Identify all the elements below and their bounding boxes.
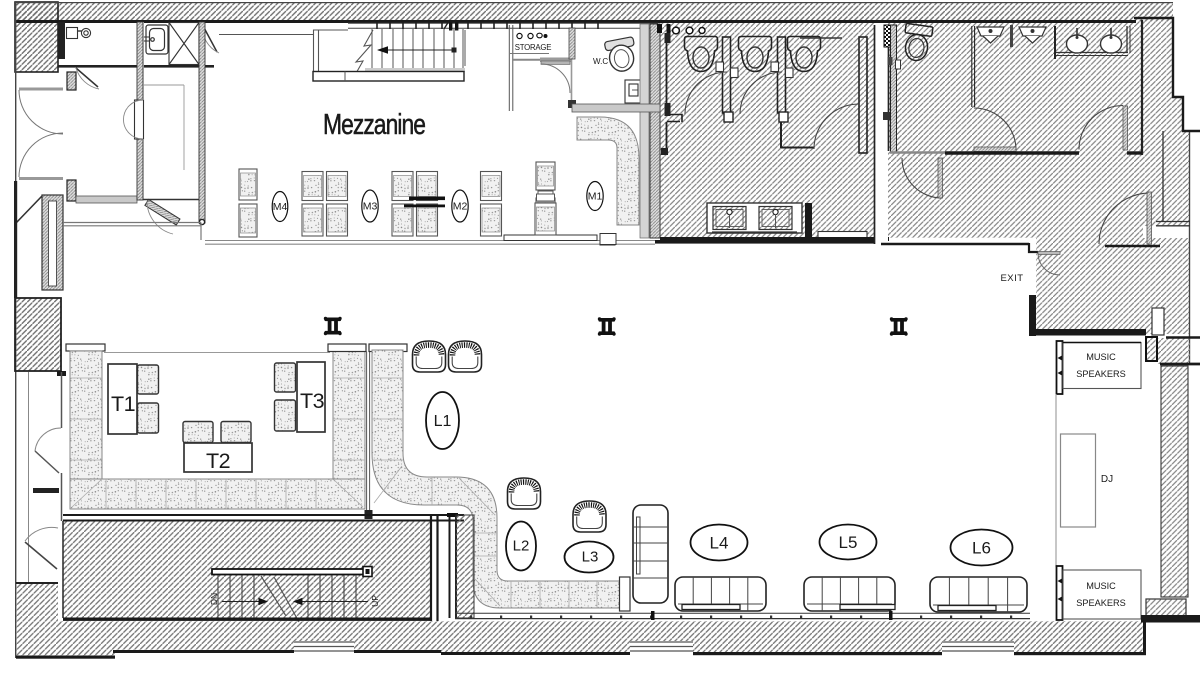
- svg-text:M3: M3: [363, 201, 378, 213]
- svg-text:L5: L5: [839, 533, 858, 552]
- svg-text:L4: L4: [710, 533, 729, 552]
- svg-text:MUSIC: MUSIC: [1086, 581, 1116, 591]
- svg-text:UP: UP: [370, 595, 380, 607]
- svg-text:L3: L3: [582, 549, 599, 566]
- svg-text:Mezzanine: Mezzanine: [323, 109, 425, 141]
- svg-text:EXIT: EXIT: [1000, 273, 1023, 284]
- svg-text:SPEAKERS: SPEAKERS: [1076, 369, 1126, 379]
- svg-text:DN: DN: [209, 593, 219, 605]
- svg-text:T3: T3: [300, 389, 325, 413]
- svg-text:M1: M1: [588, 191, 603, 203]
- svg-text:STORAGE: STORAGE: [515, 43, 552, 52]
- svg-text:SPEAKERS: SPEAKERS: [1076, 598, 1126, 608]
- svg-text:L2: L2: [513, 538, 530, 555]
- svg-text:MUSIC: MUSIC: [1086, 352, 1116, 362]
- svg-text:L6: L6: [972, 538, 991, 557]
- svg-text:W.C: W.C: [593, 57, 608, 66]
- svg-text:T1: T1: [111, 392, 135, 416]
- svg-text:DJ: DJ: [1101, 474, 1113, 485]
- svg-text:M4: M4: [273, 201, 288, 213]
- svg-text:L1: L1: [434, 413, 452, 430]
- svg-text:T2: T2: [206, 449, 230, 473]
- svg-text:M2: M2: [453, 201, 468, 213]
